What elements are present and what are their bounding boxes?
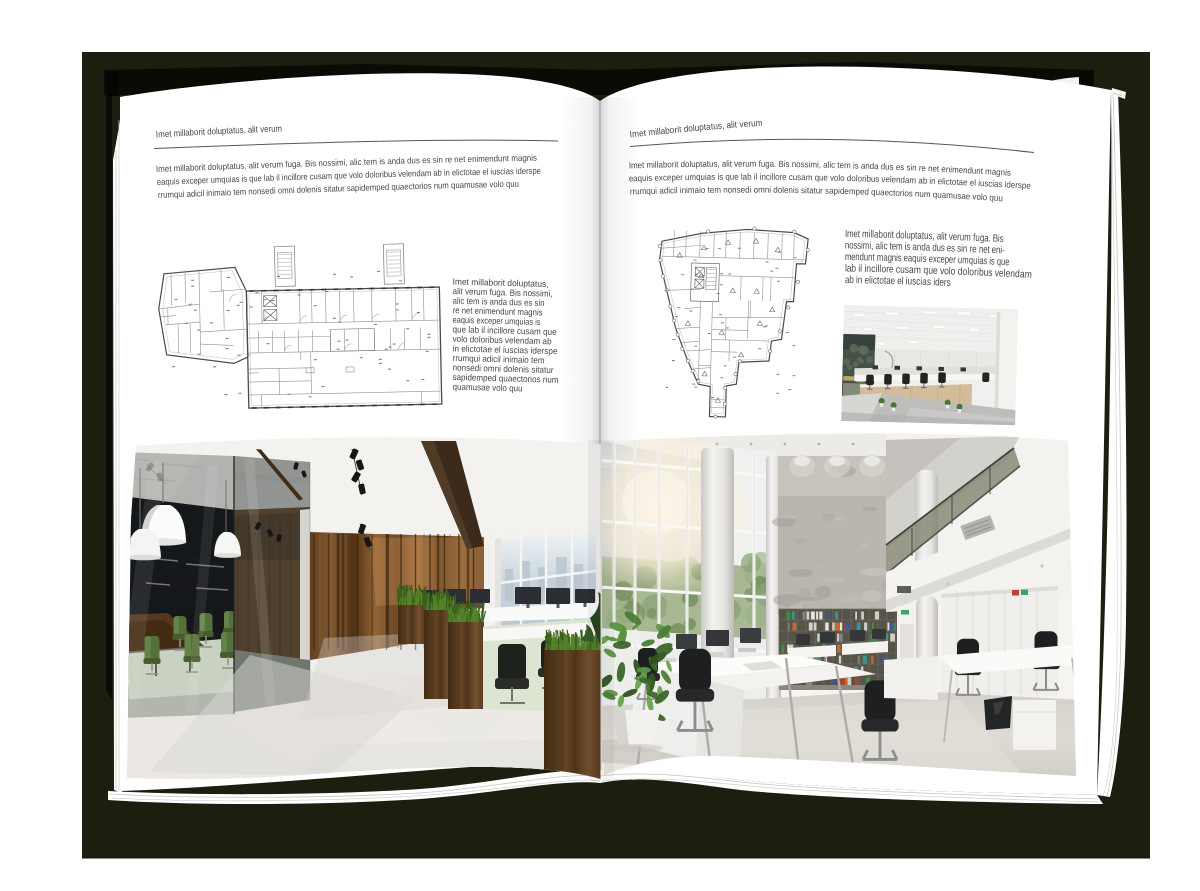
svg-text:quamusae volo quu: quamusae volo quu xyxy=(452,382,522,394)
